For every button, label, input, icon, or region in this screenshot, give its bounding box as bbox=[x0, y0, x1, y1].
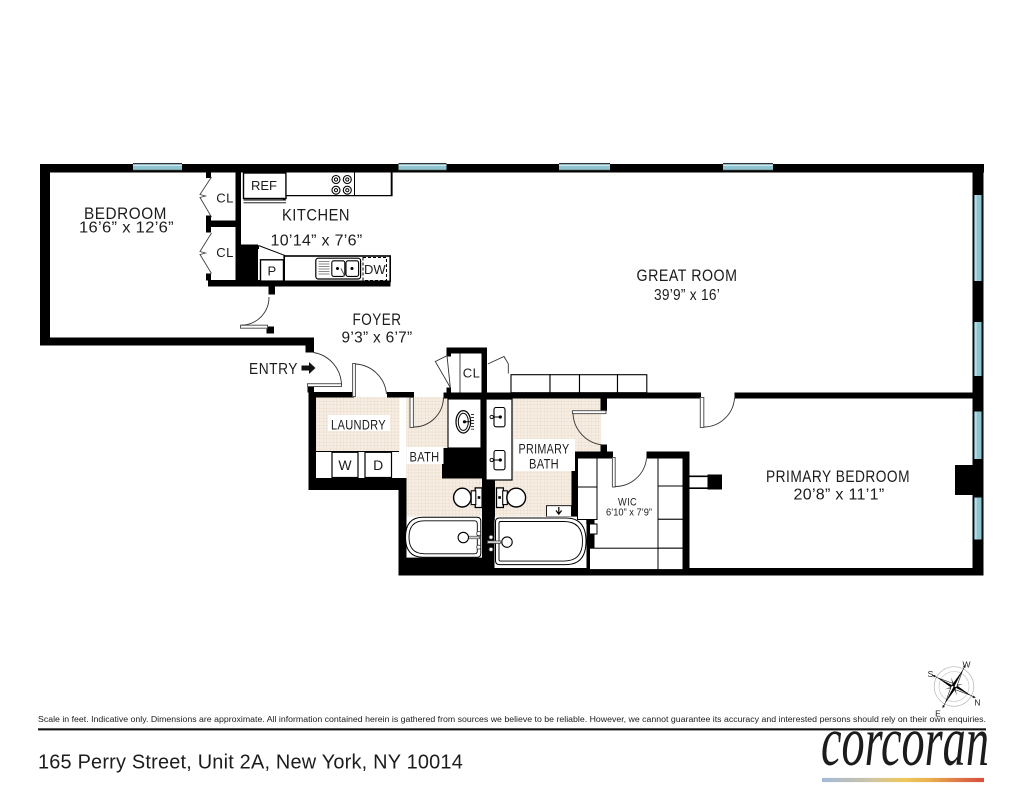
svg-text:REF: REF bbox=[251, 178, 277, 193]
svg-text:KITCHEN: KITCHEN bbox=[282, 206, 350, 225]
svg-text:20’8” x 11’1”: 20’8” x 11’1” bbox=[794, 487, 885, 504]
svg-text:16’6” x 12’6”: 16’6” x 12’6” bbox=[79, 220, 174, 237]
svg-text:CL: CL bbox=[463, 366, 480, 381]
svg-text:165 Perry Street, Unit 2A, New: 165 Perry Street, Unit 2A, New York, NY … bbox=[38, 752, 463, 774]
svg-text:9’3” x 6’7”: 9’3” x 6’7” bbox=[342, 330, 413, 347]
svg-text:S: S bbox=[928, 669, 934, 679]
svg-text:corcoran: corcoran bbox=[821, 702, 989, 780]
svg-text:6’10” x 7’9”: 6’10” x 7’9” bbox=[606, 507, 652, 519]
svg-text:PRIMARY BEDROOM: PRIMARY BEDROOM bbox=[766, 467, 910, 486]
svg-text:DW: DW bbox=[364, 262, 386, 277]
svg-text:P: P bbox=[267, 264, 276, 279]
svg-text:LAUNDRY: LAUNDRY bbox=[331, 417, 386, 433]
svg-text:PRIMARY: PRIMARY bbox=[519, 441, 570, 457]
svg-text:BATH: BATH bbox=[410, 449, 440, 465]
svg-text:D: D bbox=[373, 457, 383, 473]
svg-text:BATH: BATH bbox=[529, 456, 559, 472]
svg-text:39’9” x 16’: 39’9” x 16’ bbox=[654, 287, 720, 304]
svg-text:CL: CL bbox=[216, 245, 233, 260]
svg-text:GREAT ROOM: GREAT ROOM bbox=[637, 266, 738, 285]
svg-text:ENTRY: ENTRY bbox=[249, 361, 298, 378]
svg-text:10’14” x 7’6”: 10’14” x 7’6” bbox=[271, 233, 363, 250]
svg-text:W: W bbox=[962, 660, 970, 670]
svg-text:CL: CL bbox=[216, 191, 233, 206]
svg-text:W: W bbox=[338, 457, 352, 473]
svg-text:FOYER: FOYER bbox=[353, 310, 402, 329]
